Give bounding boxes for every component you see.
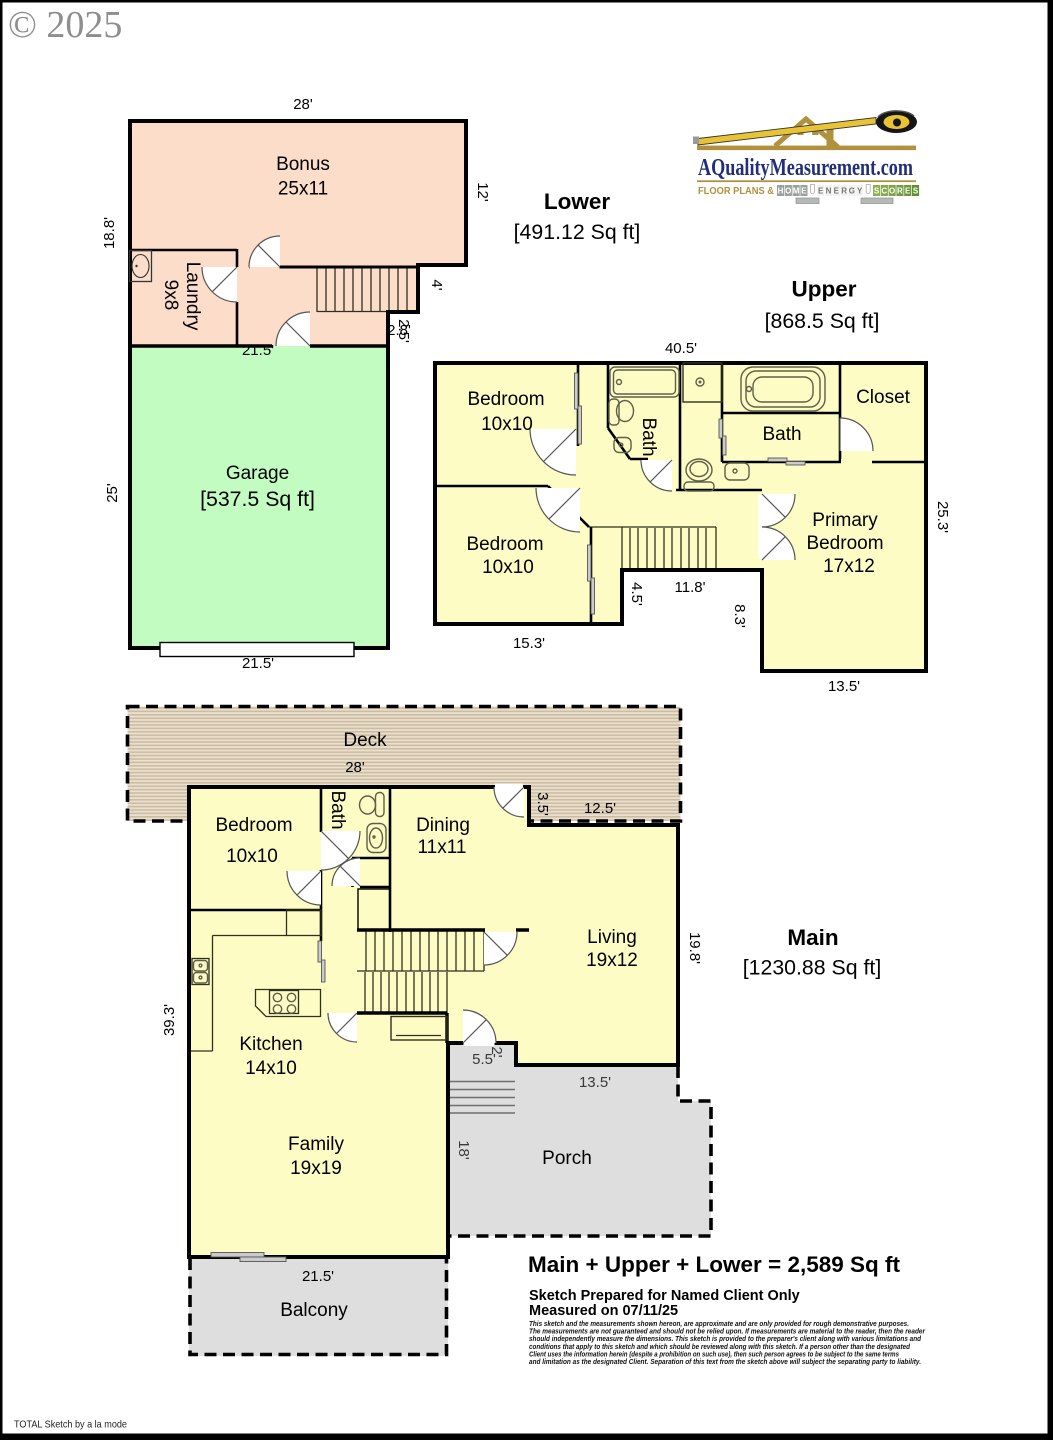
svg-text:E: E bbox=[818, 187, 824, 196]
svg-text:R: R bbox=[841, 187, 847, 196]
svg-text:21.5': 21.5' bbox=[302, 1268, 334, 1285]
svg-text:Living: Living bbox=[587, 927, 637, 948]
svg-text:40.5': 40.5' bbox=[665, 340, 697, 357]
svg-text:R: R bbox=[897, 187, 903, 196]
svg-text:13.5': 13.5' bbox=[579, 1074, 611, 1091]
svg-text:N: N bbox=[826, 187, 832, 196]
svg-text:FLOOR PLANS &: FLOOR PLANS & bbox=[698, 186, 774, 197]
svg-text:Main + Upper + Lower = 2,589 S: Main + Upper + Lower = 2,589 Sq ft bbox=[528, 1252, 900, 1277]
svg-text:10x10: 10x10 bbox=[481, 414, 533, 435]
svg-text:17x12: 17x12 bbox=[823, 556, 875, 577]
svg-text:21.5': 21.5' bbox=[242, 342, 274, 359]
svg-text:M: M bbox=[793, 187, 800, 196]
svg-text:Bath: Bath bbox=[762, 424, 801, 445]
svg-text:Sketch Prepared for Named Clie: Sketch Prepared for Named Client Only bbox=[529, 1288, 800, 1304]
svg-text:25.3': 25.3' bbox=[934, 501, 951, 533]
svg-text:Measured on 07/11/25: Measured on 07/11/25 bbox=[529, 1303, 678, 1319]
svg-text:[1230.88 Sq ft]: [1230.88 Sq ft] bbox=[743, 956, 882, 980]
svg-text:Bath: Bath bbox=[327, 790, 348, 829]
svg-text:and limitation as the designat: and limitation as the designated Client.… bbox=[529, 1357, 921, 1366]
svg-text:39.3': 39.3' bbox=[161, 1004, 178, 1036]
svg-text:Porch: Porch bbox=[542, 1148, 592, 1169]
svg-text:12.5': 12.5' bbox=[584, 800, 616, 817]
svg-text:3.5': 3.5' bbox=[534, 792, 551, 816]
svg-text:2': 2' bbox=[488, 1046, 505, 1057]
svg-text:Bedroom: Bedroom bbox=[806, 533, 883, 554]
svg-text:11x11: 11x11 bbox=[418, 837, 467, 858]
svg-text:O: O bbox=[785, 187, 791, 196]
svg-text:2.8': 2.8' bbox=[387, 322, 411, 339]
svg-text:28': 28' bbox=[345, 759, 365, 776]
svg-text:S: S bbox=[913, 187, 919, 196]
svg-text:12': 12' bbox=[474, 182, 491, 202]
svg-text:11.8': 11.8' bbox=[675, 579, 706, 596]
svg-text:S: S bbox=[874, 187, 880, 196]
svg-text:Family: Family bbox=[288, 1134, 344, 1155]
svg-text:13.5': 13.5' bbox=[828, 678, 860, 695]
svg-text:[537.5 Sq ft]: [537.5 Sq ft] bbox=[200, 487, 315, 511]
svg-text:Main: Main bbox=[787, 925, 838, 950]
svg-text:Y: Y bbox=[857, 187, 863, 196]
svg-text:Bedroom: Bedroom bbox=[466, 534, 543, 555]
svg-text:G: G bbox=[849, 187, 855, 196]
svg-text:Laundry: Laundry bbox=[182, 262, 203, 331]
svg-text:18': 18' bbox=[455, 1140, 472, 1160]
svg-text:18.8': 18.8' bbox=[101, 217, 118, 249]
svg-text:Upper: Upper bbox=[791, 277, 856, 302]
svg-text:AQualityMeasurement.com: AQualityMeasurement.com bbox=[698, 155, 913, 181]
svg-text:© 2025: © 2025 bbox=[8, 4, 122, 46]
svg-text:21.5': 21.5' bbox=[242, 655, 274, 672]
svg-text:Bath: Bath bbox=[638, 417, 659, 456]
svg-text:15.3': 15.3' bbox=[513, 635, 545, 652]
svg-text:25x11: 25x11 bbox=[278, 179, 328, 200]
svg-text:19x19: 19x19 bbox=[290, 1158, 342, 1179]
svg-text:4.5': 4.5' bbox=[628, 582, 645, 606]
svg-text:H: H bbox=[778, 187, 784, 196]
svg-text:9x8: 9x8 bbox=[160, 280, 181, 311]
svg-text:Primary: Primary bbox=[812, 510, 878, 531]
svg-text:Bedroom: Bedroom bbox=[215, 815, 292, 836]
svg-text:[868.5 Sq ft]: [868.5 Sq ft] bbox=[765, 309, 880, 333]
svg-text:C: C bbox=[881, 187, 887, 196]
svg-text:Bedroom: Bedroom bbox=[467, 389, 544, 410]
svg-text:Lower: Lower bbox=[544, 189, 611, 214]
svg-text:Dining: Dining bbox=[416, 815, 470, 836]
svg-text:E: E bbox=[801, 187, 807, 196]
svg-text:28': 28' bbox=[293, 96, 313, 113]
svg-text:Garage: Garage bbox=[226, 463, 289, 484]
svg-text:10x10: 10x10 bbox=[226, 846, 278, 867]
svg-text:Balcony: Balcony bbox=[280, 1300, 348, 1321]
svg-text:Deck: Deck bbox=[343, 730, 387, 751]
svg-text:Kitchen: Kitchen bbox=[239, 1034, 302, 1055]
svg-text:O: O bbox=[889, 187, 895, 196]
svg-text:19.8': 19.8' bbox=[686, 932, 703, 964]
svg-text:E: E bbox=[905, 187, 911, 196]
svg-text:25': 25' bbox=[104, 483, 121, 503]
svg-text:4': 4' bbox=[428, 279, 445, 290]
svg-text:10x10: 10x10 bbox=[482, 557, 534, 578]
svg-text:Closet: Closet bbox=[856, 387, 911, 408]
svg-text:[491.12 Sq ft]: [491.12 Sq ft] bbox=[514, 220, 641, 244]
svg-text:Bonus: Bonus bbox=[276, 154, 330, 175]
svg-text:TOTAL Sketch by a la mode: TOTAL Sketch by a la mode bbox=[14, 1419, 127, 1431]
svg-text:14x10: 14x10 bbox=[245, 1058, 297, 1079]
svg-text:8.3': 8.3' bbox=[731, 604, 748, 628]
svg-text:E: E bbox=[834, 187, 840, 196]
svg-text:19x12: 19x12 bbox=[586, 950, 638, 971]
